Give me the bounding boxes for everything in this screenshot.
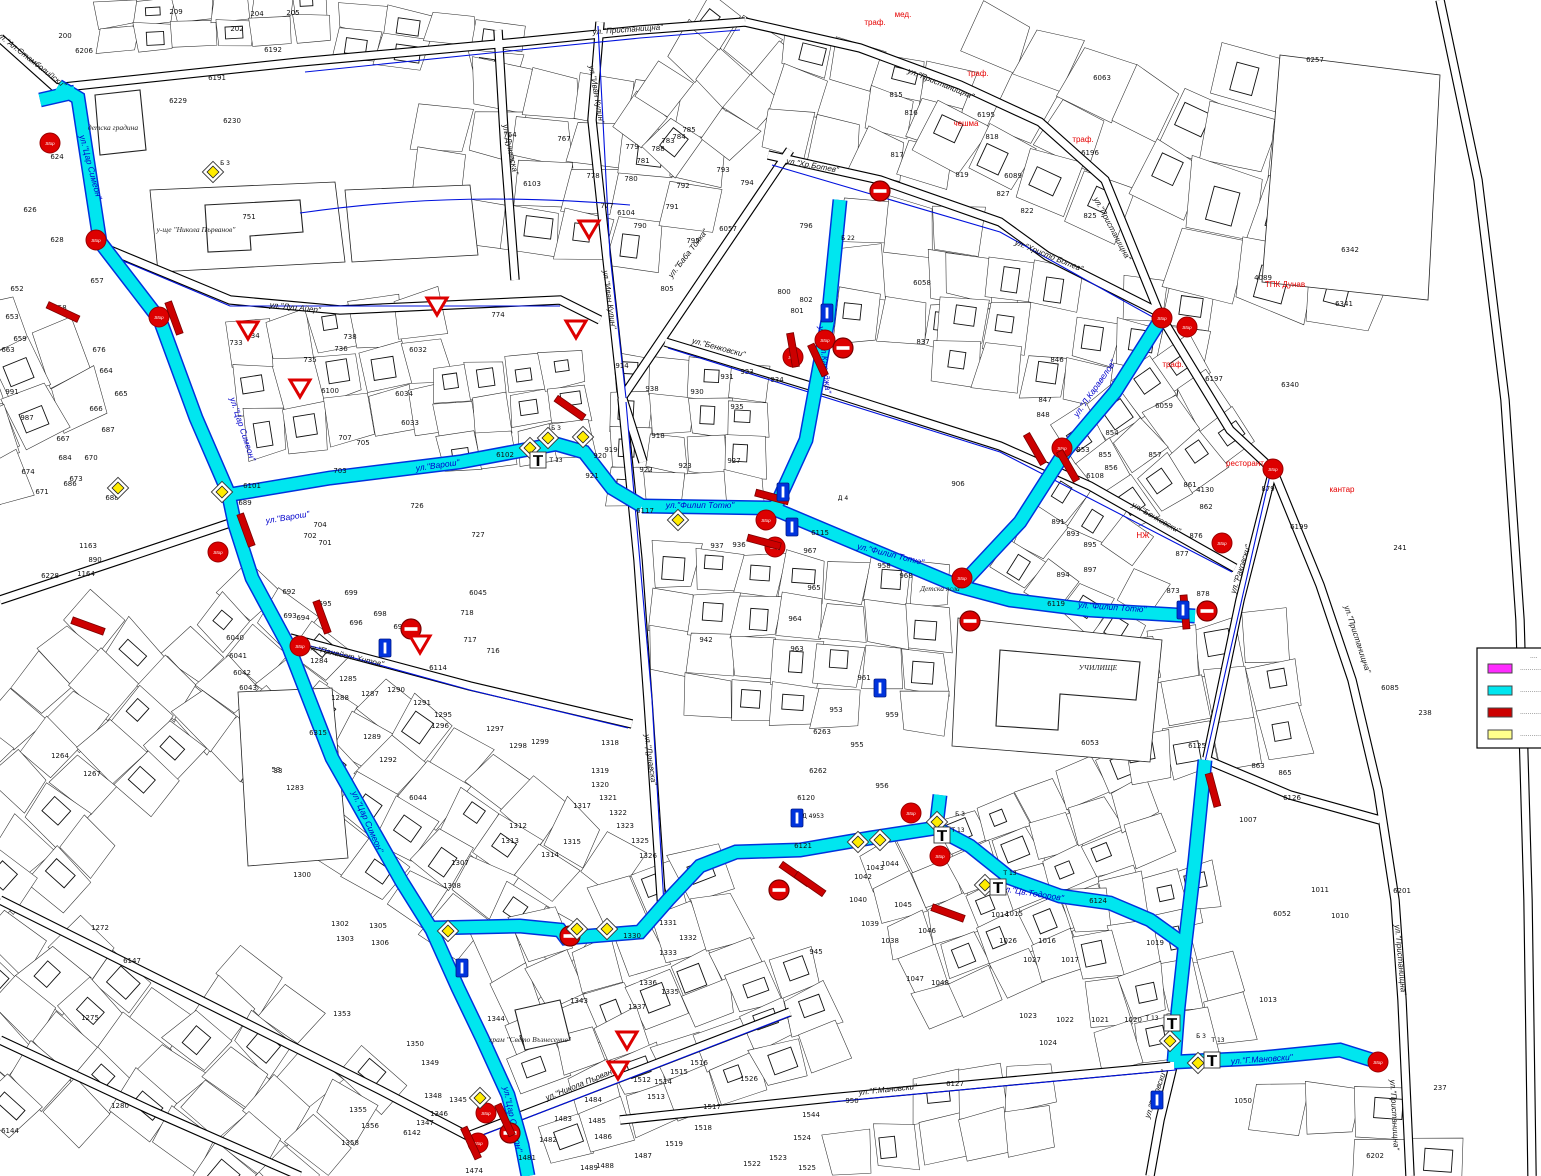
info-glyph <box>1182 605 1185 616</box>
parcel-number: 6202 <box>1366 1152 1384 1160</box>
parcel-number: 6124 <box>1089 897 1107 905</box>
parcel-number: 1027 <box>1023 956 1041 964</box>
legend-label: ············· <box>1520 733 1541 740</box>
parcel-number: 6034 <box>395 390 413 398</box>
building <box>253 421 273 447</box>
parcel-number: 1016 <box>1038 937 1056 945</box>
parcel-number: 914 <box>615 362 629 370</box>
parcel-number: 6144 <box>1 1127 19 1135</box>
junction-layout-sign-icon <box>1204 1052 1220 1068</box>
info-glyph <box>461 963 464 974</box>
stop-text: Stop <box>761 518 771 523</box>
parcel-number: 1308 <box>443 882 461 890</box>
parcel-number: 958 <box>877 562 890 570</box>
parcel-number: 1322 <box>609 809 627 817</box>
parcel-number: 937 <box>710 542 723 550</box>
parcel-number: 6142 <box>403 1129 421 1137</box>
parcel <box>728 635 776 679</box>
parcel-number: 1267 <box>83 770 101 778</box>
parcel-number: 1303 <box>336 935 354 943</box>
info-glyph <box>782 487 785 498</box>
parcel-number: 1347 <box>416 1119 434 1127</box>
parcel-number: 767 <box>557 135 570 143</box>
parcel-number: 1513 <box>647 1093 665 1101</box>
parcel-number: 1297 <box>486 725 504 733</box>
stop-sign-icon: Stop <box>290 636 310 656</box>
parcel-number: 1356 <box>361 1122 379 1130</box>
poi-red-label: ТПК Дунав <box>1265 280 1305 289</box>
stop-sign-icon: Stop <box>1368 1052 1388 1072</box>
parcel-number: 6230 <box>223 117 241 125</box>
parcel <box>897 688 949 737</box>
parcel-number: 6033 <box>401 419 419 427</box>
parcel-number: 1046 <box>918 927 936 935</box>
parcel-number: 1318 <box>601 739 619 747</box>
parcel-number: 1486 <box>594 1133 612 1141</box>
building <box>322 315 338 331</box>
parcel-number: 788 <box>651 145 664 153</box>
parcel-number: 1522 <box>743 1160 761 1168</box>
parcel-number: 1335 <box>661 988 679 996</box>
building <box>734 410 750 423</box>
building <box>741 690 761 709</box>
parcel-number: 717 <box>463 636 476 644</box>
parcel-number: 1344 <box>487 1015 505 1023</box>
parcel-number: 727 <box>471 531 484 539</box>
parcel-number: 6058 <box>913 279 931 287</box>
parcel-number: 6103 <box>523 180 541 188</box>
building <box>476 368 495 388</box>
parcel-number: 1298 <box>509 742 527 750</box>
parcel-number: 956 <box>875 782 889 790</box>
parcel-number: 1048 <box>931 979 949 987</box>
parcel-number: 1042 <box>854 873 872 881</box>
parcel <box>818 603 869 642</box>
stop-sign-icon: Stop <box>208 542 228 562</box>
parcel-number: 801 <box>790 307 803 315</box>
parcel-number: 666 <box>89 405 103 413</box>
parcel-number: 1013 <box>1259 996 1277 1004</box>
parcel-number: 1024 <box>1039 1039 1057 1047</box>
poi-label: детска градина <box>88 123 138 132</box>
poi-red-label: мед. <box>895 10 912 19</box>
parcel-number: 664 <box>99 367 113 375</box>
parcel-number: 202 <box>230 25 243 33</box>
building <box>554 360 569 373</box>
parcel-number: 1349 <box>421 1059 439 1067</box>
building <box>954 305 977 326</box>
stop-text: Stop <box>957 576 967 581</box>
stop-text: Stop <box>1373 1060 1383 1065</box>
parcel-number: 1353 <box>333 1010 351 1018</box>
parcel <box>647 393 694 436</box>
building <box>829 650 848 669</box>
legend-label: ············· <box>1520 667 1541 674</box>
building <box>881 569 902 589</box>
parcel-number: 817 <box>890 151 903 159</box>
parcel-number: 676 <box>92 346 106 354</box>
poi-red-label: НЖ <box>1136 531 1150 540</box>
parcel-number: 6195 <box>977 111 995 119</box>
parcel-number: 857 <box>1148 451 1161 459</box>
parcel-number: 827 <box>996 190 1009 198</box>
building <box>442 373 458 390</box>
stop-text: Stop <box>1217 541 1227 546</box>
parcel-number: 1523 <box>769 1154 787 1162</box>
parcel-number: 1289 <box>363 733 381 741</box>
parcel-number: 890 <box>88 556 101 564</box>
parcel-number: 209 <box>169 8 182 16</box>
info-sign-icon <box>379 639 391 657</box>
parcel-number: 781 <box>636 157 649 165</box>
parcel-number: 1045 <box>894 901 912 909</box>
parcel-number: 694 <box>296 614 310 622</box>
parcel-number: 6206 <box>75 47 93 55</box>
stop-sign-icon: Stop <box>1152 308 1172 328</box>
poi-red-label: кантар <box>1329 485 1355 494</box>
parcel <box>1237 605 1296 670</box>
parcel-number: 1343 <box>570 997 588 1005</box>
parcel-number: 6147 <box>123 957 141 965</box>
parcel-number: 945 <box>809 948 822 956</box>
parcel-number: 1336 <box>639 979 657 987</box>
info-glyph <box>791 522 794 533</box>
building <box>843 303 862 320</box>
parcel-number: 796 <box>799 222 813 230</box>
parcel-number: 738 <box>343 333 356 341</box>
legend-swatch <box>1488 730 1512 739</box>
stop-text: Stop <box>935 854 945 859</box>
parcel-number: 6341 <box>1335 300 1353 308</box>
parcel-number: 1292 <box>379 756 397 764</box>
building <box>702 602 723 621</box>
parcel-number: 200 <box>58 32 71 40</box>
parcel-number: 1350 <box>406 1040 424 1048</box>
no-entry-sign-icon <box>769 880 789 900</box>
parcel-number: 876 <box>1189 532 1203 540</box>
parcel-number: 6114 <box>429 664 447 672</box>
building <box>792 568 816 584</box>
parcel-number: 1283 <box>286 784 304 792</box>
no-entry-bar <box>405 627 418 631</box>
stop-text: Stop <box>1268 467 1278 472</box>
building <box>515 368 532 382</box>
building <box>995 315 1014 333</box>
parcel-number: 6120 <box>797 794 815 802</box>
parcel-number: 938 <box>645 385 658 393</box>
parcel-number: 1020 <box>1124 1016 1142 1024</box>
parcel-number: 6045 <box>469 589 487 597</box>
parcel <box>209 0 250 23</box>
parcel-number: 693 <box>283 612 296 620</box>
stop-text: Stop <box>481 1111 491 1116</box>
no-entry-bar <box>1201 609 1214 613</box>
stop-sign-icon: Stop <box>149 307 169 327</box>
parcel-number: 780 <box>624 175 637 183</box>
parcel-number: 6102 <box>496 451 514 459</box>
stop-sign-icon: Stop <box>1263 459 1283 479</box>
parcel-number: 205 <box>286 9 299 17</box>
parcel-number: 918 <box>651 432 664 440</box>
parcel-number: 6340 <box>1281 381 1299 389</box>
parcel-number: 1026 <box>999 937 1017 945</box>
parcel-number: 6059 <box>1155 402 1173 410</box>
parcel-number: 822 <box>1020 207 1033 215</box>
building <box>911 661 934 684</box>
parcel-number: 933 <box>740 368 753 376</box>
parcel-number: 1007 <box>1239 816 1257 824</box>
junction-layout-sign-icon <box>934 827 950 843</box>
poi-label: у-ще "Никола Първанов" <box>156 225 237 234</box>
legend-note: ···· <box>1530 655 1538 662</box>
no-entry-sign-icon <box>833 338 853 358</box>
stop-text: Stop <box>820 338 830 343</box>
parcel-number: 704 <box>313 521 327 529</box>
building <box>1424 1148 1453 1172</box>
street-name: ул."Филип Тотю" <box>665 500 735 510</box>
poi-red-label: траф. <box>864 18 885 27</box>
parcel-number: 6229 <box>169 97 187 105</box>
parcel <box>1161 675 1211 726</box>
parcel-number: 794 <box>740 179 754 187</box>
parcel-number: 819 <box>955 171 968 179</box>
parcel-number: 652 <box>10 285 23 293</box>
parcel-number: 6127 <box>946 1080 964 1088</box>
parcel-number: 1544 <box>802 1111 820 1119</box>
no-entry-bar <box>874 189 887 193</box>
sign-code-label: Б 3 <box>551 425 561 432</box>
parcel-number: 703 <box>333 467 346 475</box>
no-entry-sign-icon <box>960 611 980 631</box>
parcel-number: 6126 <box>1283 794 1301 802</box>
building <box>524 216 553 239</box>
parcel-number: 663 <box>1 346 14 354</box>
parcel-number: 955 <box>850 741 863 749</box>
parcel-number: 6199 <box>1290 523 1308 531</box>
parcel-number: 923 <box>678 462 691 470</box>
parcel-number: 1264 <box>51 752 69 760</box>
parcel-number: 6032 <box>409 346 427 354</box>
legend-swatch <box>1488 708 1512 717</box>
stop-sign-icon: Stop <box>952 568 972 588</box>
parcel-number: 6044 <box>409 794 427 802</box>
building <box>914 620 937 640</box>
parcel-number: 707 <box>338 434 351 442</box>
stop-sign-icon: Stop <box>1177 317 1197 337</box>
parcel-number: 1516 <box>690 1059 708 1067</box>
parcel-number: 733 <box>229 339 242 347</box>
parcel-number: 935 <box>730 403 743 411</box>
parcel-number: 779 <box>625 143 638 151</box>
parcel-number: 659 <box>13 335 26 343</box>
info-glyph <box>796 813 799 824</box>
info-sign-icon <box>1151 1091 1163 1109</box>
poi-label: храм "Свето Възнесение" <box>488 1035 572 1044</box>
parcel-number: 628 <box>50 236 63 244</box>
info-sign-icon <box>1177 601 1189 619</box>
building <box>750 565 770 581</box>
building <box>700 406 715 425</box>
parcel-number: 856 <box>1104 464 1118 472</box>
legend-label: ············· <box>1520 711 1541 718</box>
parcel-number: 863 <box>1251 762 1264 770</box>
parcel-number: 670 <box>84 454 97 462</box>
info-sign-icon <box>786 518 798 536</box>
parcel-number: 1518 <box>694 1124 712 1132</box>
parcel-number: 774 <box>491 311 505 319</box>
parcel-number: 718 <box>460 609 473 617</box>
parcel-number: 626 <box>23 206 37 214</box>
parcel-number: 1307 <box>451 859 469 867</box>
poi-label: Детска ясла <box>919 584 960 593</box>
stop-text: Stop <box>295 644 305 649</box>
big-parcel-ne <box>1262 55 1440 300</box>
parcel-number: 699 <box>344 589 357 597</box>
parcel-number: 1040 <box>849 896 867 904</box>
info-sign-icon <box>777 483 789 501</box>
parcel-number: 895 <box>1083 541 1096 549</box>
parcel-number: 785 <box>682 126 695 134</box>
parcel-number: 6108 <box>1086 472 1104 480</box>
parcel-number: 1483 <box>554 1115 572 1123</box>
poi-label: УЧИЛИЩЕ <box>1079 663 1118 672</box>
parcel-number: 698 <box>373 610 386 618</box>
parcel <box>1302 1081 1362 1137</box>
building <box>749 608 768 630</box>
poi-red-label: чешма <box>954 119 980 128</box>
parcel-number: 1512 <box>633 1076 651 1084</box>
info-sign-icon <box>456 959 468 977</box>
parcel-number: 793 <box>716 166 729 174</box>
parcel-number: 6085 <box>1381 684 1399 692</box>
no-entry-bar <box>773 888 786 892</box>
map-canvas[interactable]: 2002042052022096206619261916230622975162… <box>0 0 1541 1176</box>
building <box>1081 940 1106 967</box>
building <box>1272 722 1291 742</box>
parcel-number: 6100 <box>321 387 339 395</box>
parcel-number: 891 <box>1051 518 1064 526</box>
stop-sign-icon: Stop <box>815 330 835 350</box>
parcel-number: 1333 <box>659 949 677 957</box>
stop-sign-icon: Stop <box>901 803 921 823</box>
parcel-number: 965 <box>807 584 820 592</box>
parcel-number: 963 <box>790 645 803 653</box>
parcel-number: 1285 <box>339 675 357 683</box>
parcel-number: 1487 <box>634 1152 652 1160</box>
parcel-number: 6057 <box>719 225 737 233</box>
stop-sign-icon: Stop <box>1212 533 1232 553</box>
parcel-number: 657 <box>90 277 103 285</box>
building <box>782 694 804 710</box>
parcel-number: 961 <box>857 674 870 682</box>
sign-code-label: Б 22 <box>841 235 855 242</box>
stop-text: Stop <box>154 315 164 320</box>
parcel-number: 6125 <box>1188 742 1206 750</box>
parcel-number: 1021 <box>1091 1016 1109 1024</box>
building <box>662 557 685 581</box>
parcel-number: 705 <box>356 439 369 447</box>
parcel-number: 878 <box>1196 590 1209 598</box>
parcel-number: 6089 <box>1004 172 1022 180</box>
parcel-number: 778 <box>586 172 599 180</box>
building <box>300 0 313 6</box>
parcel-number: 1489 <box>580 1164 598 1172</box>
parcel-number: 6342 <box>1341 246 1359 254</box>
parcel <box>249 16 292 47</box>
parcel-number: 1481 <box>518 1154 536 1162</box>
sign-code-label: Б 3 <box>1196 1033 1206 1040</box>
parcel-number: 238 <box>1418 709 1431 717</box>
parcel-number: 1315 <box>563 838 581 846</box>
parcel-number: 1474 <box>465 1167 483 1175</box>
parcel-number: 790 <box>633 222 646 230</box>
parcel-number: 696 <box>349 619 363 627</box>
parcel-number: 927 <box>727 457 740 465</box>
legend-swatch <box>1488 686 1512 695</box>
parcel-number: 1345 <box>449 1096 467 1104</box>
info-glyph <box>826 308 829 319</box>
parcel-number: 1272 <box>91 924 109 932</box>
sign-code-label: Т 13 <box>548 457 562 464</box>
building <box>879 1136 897 1158</box>
parcel-number: 6117 <box>636 507 654 515</box>
building <box>620 234 639 258</box>
building <box>704 369 719 382</box>
building <box>1043 277 1063 303</box>
parcel-number: 1022 <box>1056 1016 1074 1024</box>
parcel-number: 1299 <box>531 738 549 746</box>
parcel-number: 1519 <box>665 1140 683 1148</box>
building <box>396 18 420 36</box>
parcel-number: 1288 <box>331 694 349 702</box>
parcel-number: 241 <box>1393 544 1406 552</box>
parcel-number: 1023 <box>1019 1012 1037 1020</box>
parcel-number: 751 <box>242 213 255 221</box>
parcel-number: 6228 <box>41 572 59 580</box>
parcel-number: 930 <box>690 388 703 396</box>
sign-code-label: Д 4 <box>838 495 849 502</box>
no-entry-bar <box>964 619 977 623</box>
building <box>145 7 160 16</box>
parcel-number: 726 <box>410 502 424 510</box>
stop-sign-icon: Stop <box>756 510 776 530</box>
parcel-number: 959 <box>885 711 898 719</box>
parcel-number: 1284 <box>310 657 328 665</box>
no-entry-sign-icon <box>1197 601 1217 621</box>
parcel-number: 6201 <box>1393 887 1411 895</box>
parcel-number: 846 <box>1050 356 1064 364</box>
parcel-number: 1275 <box>81 1014 99 1022</box>
parcel-number: 931 <box>720 373 733 381</box>
parcel-number: 893 <box>1066 530 1079 538</box>
parcel-number: 879 <box>1261 485 1274 493</box>
map-legend: ········································… <box>1477 648 1541 748</box>
parcel-number: 865 <box>1278 769 1291 777</box>
legend-label: ············· <box>1520 689 1541 696</box>
parcel-number: 1300 <box>293 871 311 879</box>
building <box>704 555 723 570</box>
parcel-number: 1358 <box>341 1139 359 1147</box>
parcel-number: 847 <box>1038 396 1051 404</box>
parcel-number: 6257 <box>1306 56 1324 64</box>
parcel-number: 735 <box>303 356 316 364</box>
parcel-number: 855 <box>1098 451 1111 459</box>
parcel-number: 1306 <box>371 939 389 947</box>
parcel-number: 815 <box>889 91 902 99</box>
parcel-number: 684 <box>58 454 72 462</box>
parcel-number: 6043 <box>239 684 257 692</box>
school-block-2 <box>345 185 478 262</box>
